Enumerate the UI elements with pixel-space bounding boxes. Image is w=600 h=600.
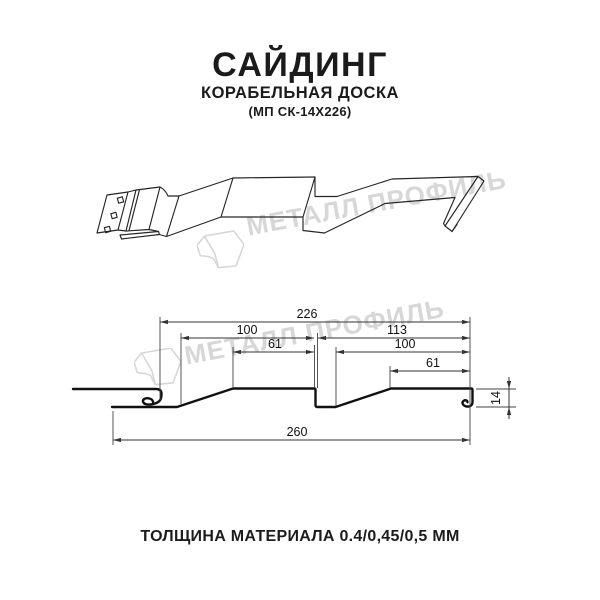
section-profile-outline [73, 389, 473, 408]
dimension-lines [113, 320, 511, 442]
panel-3d-view [97, 177, 484, 240]
dimension-labels: 226 100 113 61 100 61 14 260 [237, 307, 503, 439]
dim-100-right: 100 [395, 337, 416, 351]
dim-61-left: 61 [268, 337, 282, 351]
dim-100-left: 100 [237, 323, 258, 337]
technical-drawing: 226 100 113 61 100 61 14 260 [0, 0, 600, 600]
extension-lines [113, 317, 516, 445]
dim-226: 226 [297, 307, 318, 321]
dim-260: 260 [287, 425, 308, 439]
dim-14: 14 [489, 391, 503, 405]
dim-61-right: 61 [426, 356, 440, 370]
diagram-page: САЙДИНГ КОРАБЕЛЬНАЯ ДОСКА (МП СК-14Х226)… [0, 0, 600, 600]
dim-113: 113 [387, 323, 407, 337]
